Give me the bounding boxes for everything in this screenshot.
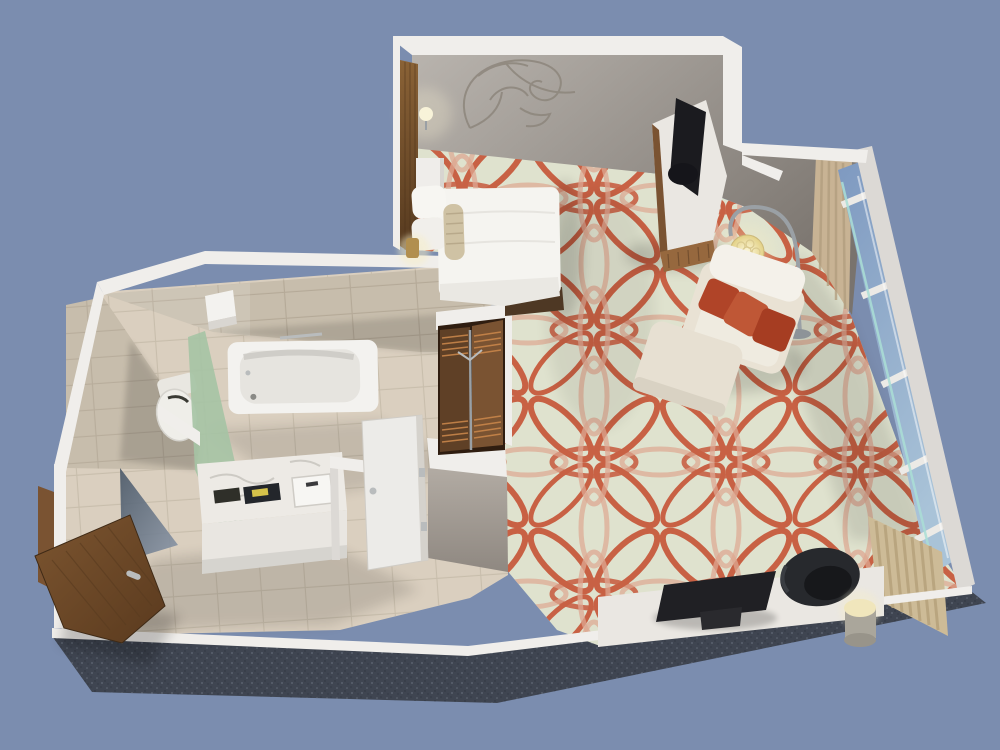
room-render-stage bbox=[0, 0, 1000, 750]
se-wall-face bbox=[428, 468, 508, 572]
cylinder-base bbox=[844, 633, 876, 647]
door-hinge-top bbox=[419, 468, 425, 477]
ne-corner-band bbox=[723, 36, 742, 152]
door-handle bbox=[370, 488, 377, 495]
hotel-room-3d-render bbox=[0, 0, 1000, 750]
door-hinge-bottom bbox=[421, 522, 427, 531]
bathtub bbox=[227, 340, 378, 415]
tv-base bbox=[668, 163, 698, 185]
sink-basin bbox=[292, 474, 333, 507]
closet-rod bbox=[470, 330, 471, 450]
bedroom-west-edge bbox=[393, 36, 400, 250]
pillow-top bbox=[411, 185, 447, 219]
wall-sconce bbox=[419, 107, 433, 121]
vanity bbox=[197, 452, 347, 574]
brass-table-lamp bbox=[406, 238, 419, 258]
bolster-cushion bbox=[443, 204, 465, 261]
cylinder-table-lamp bbox=[840, 590, 880, 647]
cylinder-top bbox=[844, 599, 876, 617]
closet bbox=[438, 318, 505, 455]
bedroom-north-band bbox=[393, 36, 723, 55]
